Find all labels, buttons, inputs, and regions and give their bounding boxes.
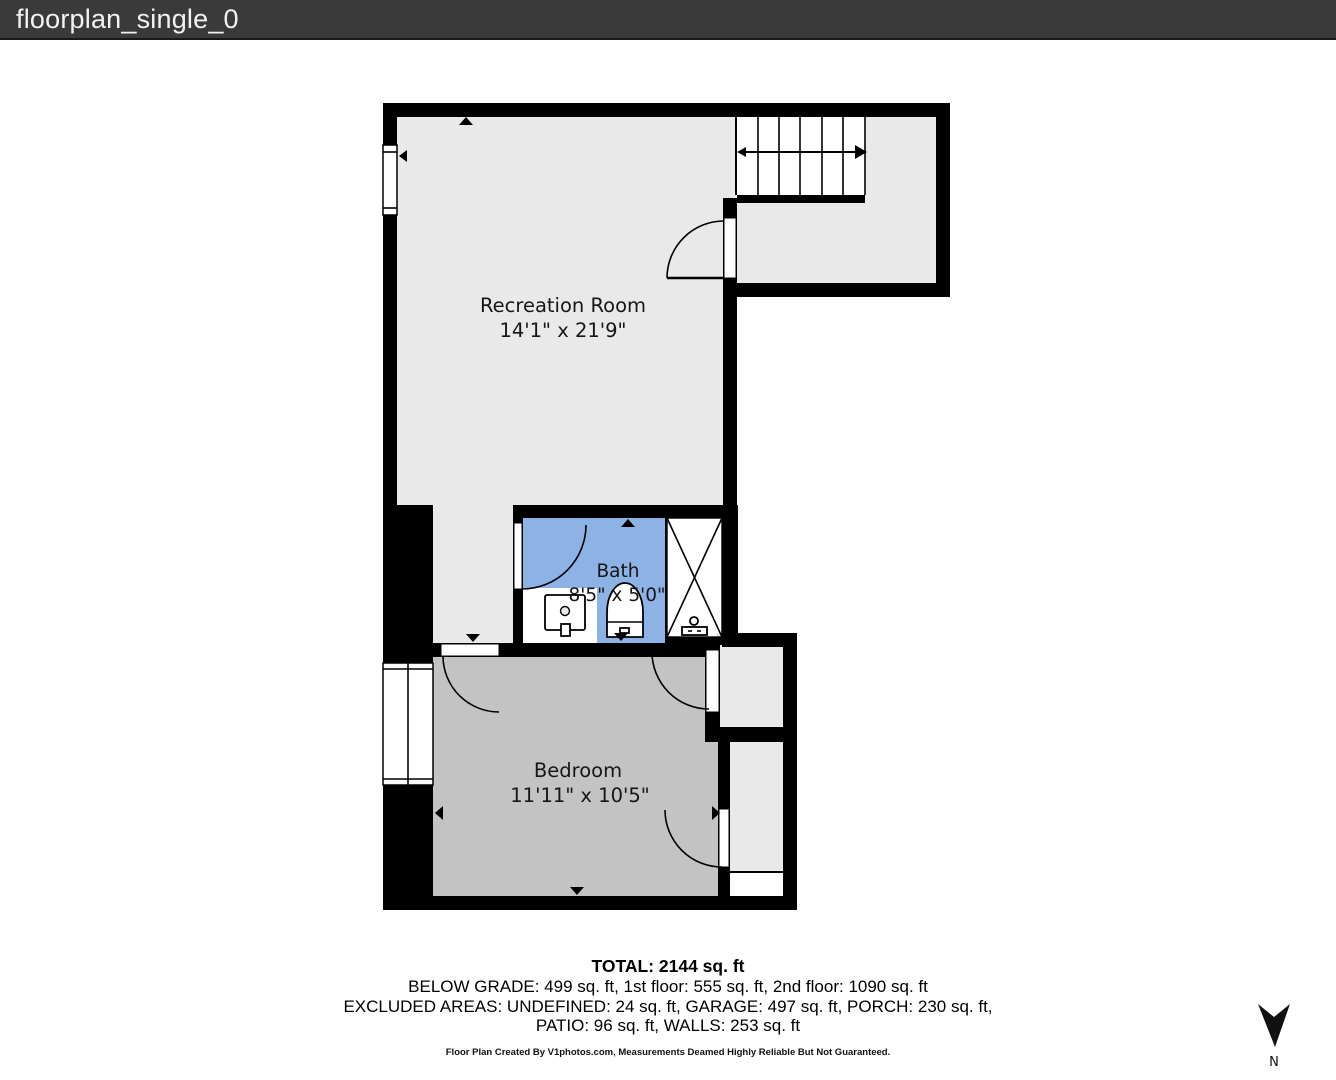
wall-east-lower	[783, 633, 797, 910]
stairs-left-line	[735, 117, 737, 195]
wall-south	[383, 896, 797, 910]
summary-excluded-2: PATIO: 96 sq. ft, WALLS: 253 sq. ft	[0, 1016, 1336, 1036]
recreation-window	[383, 145, 397, 215]
stairs-bottom-edge	[737, 195, 865, 203]
wall-right-upper	[936, 103, 950, 297]
closet-lower-floor	[728, 742, 783, 871]
wall-bath-top	[513, 505, 738, 518]
summary-total: TOTAL: 2144 sq. ft	[0, 956, 1336, 977]
area-summary: TOTAL: 2144 sq. ft BELOW GRADE: 499 sq. …	[0, 956, 1336, 1058]
closet-upper-floor	[716, 633, 783, 727]
wall-landing-south	[723, 283, 950, 297]
summary-excluded-1: EXCLUDED AREAS: UNDEFINED: 24 sq. ft, GA…	[0, 997, 1336, 1017]
recreation-room-label: Recreation Room	[480, 294, 646, 317]
closet-strip-divider	[728, 871, 783, 873]
sink-drain-icon	[561, 624, 570, 636]
floor-plan: Recreation Room 14'1" x 21'9" Bath 8'5" …	[0, 0, 1336, 1080]
bath-shower-divider	[665, 518, 667, 643]
closet-lower-white-strip	[728, 873, 783, 896]
bedroom-label: Bedroom	[534, 759, 622, 782]
summary-disclaimer: Floor Plan Created By V1photos.com, Meas…	[0, 1047, 1336, 1058]
bedroom-dims: 11'11" x 10'5"	[510, 784, 649, 807]
recreation-room-dims: 14'1" x 21'9"	[499, 319, 626, 342]
bath-label: Bath	[596, 561, 639, 582]
sink-faucet-icon	[561, 607, 570, 616]
stairs-floor	[737, 117, 865, 195]
bedroom-window	[383, 663, 433, 785]
bath-dims: 8'5" x 5'0"	[569, 585, 666, 606]
wall-closet-divider	[705, 727, 783, 742]
summary-floors: BELOW GRADE: 499 sq. ft, 1st floor: 555 …	[0, 977, 1336, 997]
wall-top	[383, 103, 950, 117]
toilet-flush-icon	[620, 628, 629, 633]
